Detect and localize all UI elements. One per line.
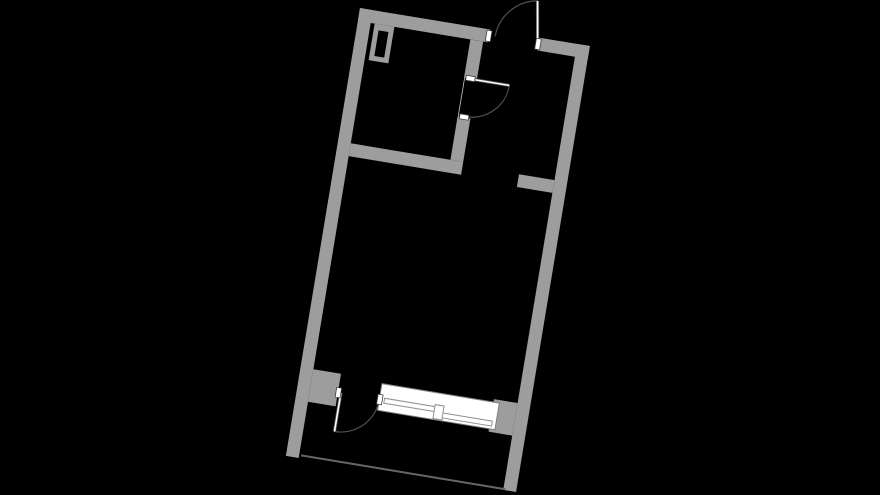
- floor-plan-canvas: [0, 0, 880, 495]
- balcony-door-jamb-marker-right: [377, 394, 384, 405]
- room-door-jamb-marker-top: [466, 75, 476, 81]
- floor-plan-viewer: [0, 0, 880, 495]
- balcony-pier-left: [308, 369, 341, 406]
- room-door-jamb-marker-bottom: [459, 114, 469, 120]
- window-pane-center-meeting-stile: [433, 405, 444, 420]
- balcony-door-jamb-marker-left: [335, 387, 342, 398]
